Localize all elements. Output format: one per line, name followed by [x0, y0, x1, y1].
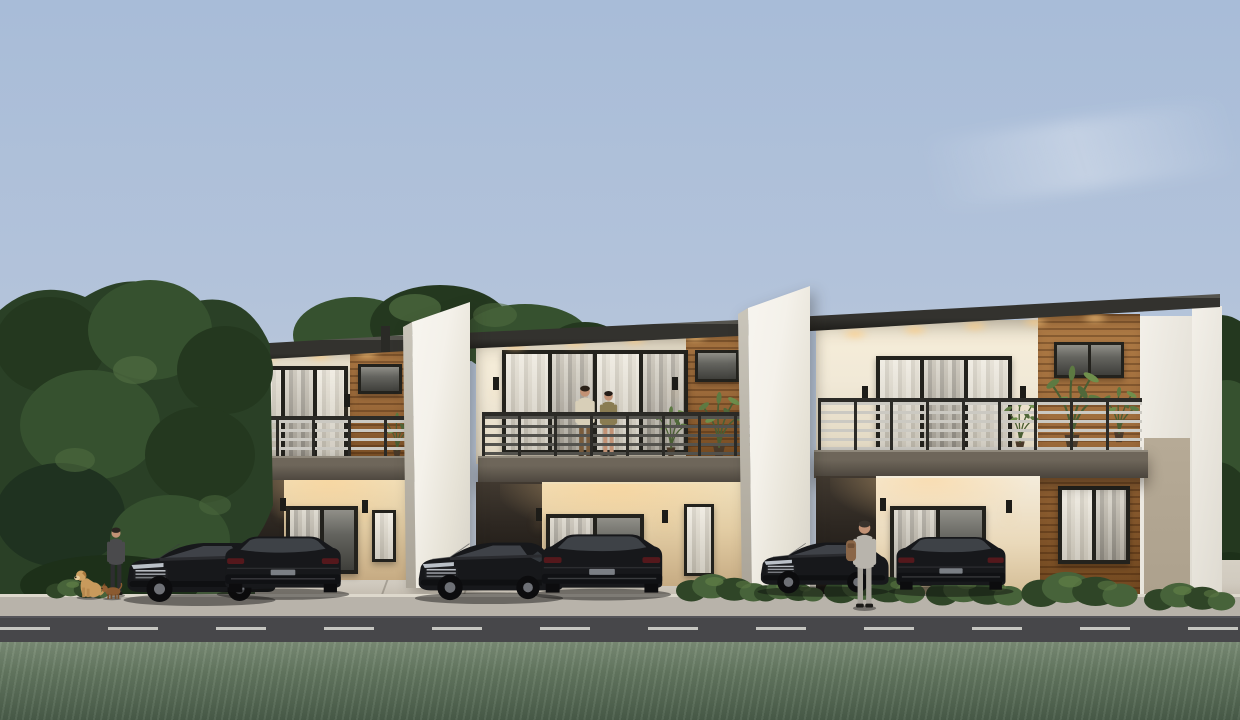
unit3-eave-light: [840, 328, 870, 340]
unit3-eave-light: [900, 324, 930, 336]
shrub: [1018, 564, 1142, 608]
unit3-balcony-railing: [818, 398, 1142, 458]
dog-small-brown: [98, 580, 126, 602]
architectural-rendering-scene: [0, 0, 1240, 720]
unit1-accent-window: [358, 364, 402, 394]
unit2-sconce-right: [672, 377, 678, 390]
road-centerline: [0, 627, 1240, 630]
car-unit3-rear: [884, 516, 1018, 608]
unit2-balcony-slab: [478, 456, 758, 484]
shrub: [1144, 574, 1236, 614]
unit1-roof-drain: [381, 326, 390, 352]
unit2-accent-window: [695, 350, 739, 382]
car-unit1-rear: [212, 518, 354, 608]
foreground-lawn: [0, 642, 1240, 720]
unit3-gf-sconce-right: [1006, 500, 1012, 513]
unit3-accent-window-bottom: [1058, 486, 1130, 564]
unit1-gf-sconce-left: [280, 498, 286, 511]
unit2-sconce-left: [493, 377, 499, 390]
unit3-balcony-slab: [814, 450, 1148, 478]
unit3-gf-sconce-left: [880, 498, 886, 511]
unit1-ground-side-window: [372, 510, 396, 562]
walking-person-backpack: [846, 514, 880, 616]
unit1-gf-sconce-right: [362, 500, 368, 513]
unit1-sconce-right: [344, 394, 350, 407]
car-unit2-rear: [528, 516, 676, 608]
